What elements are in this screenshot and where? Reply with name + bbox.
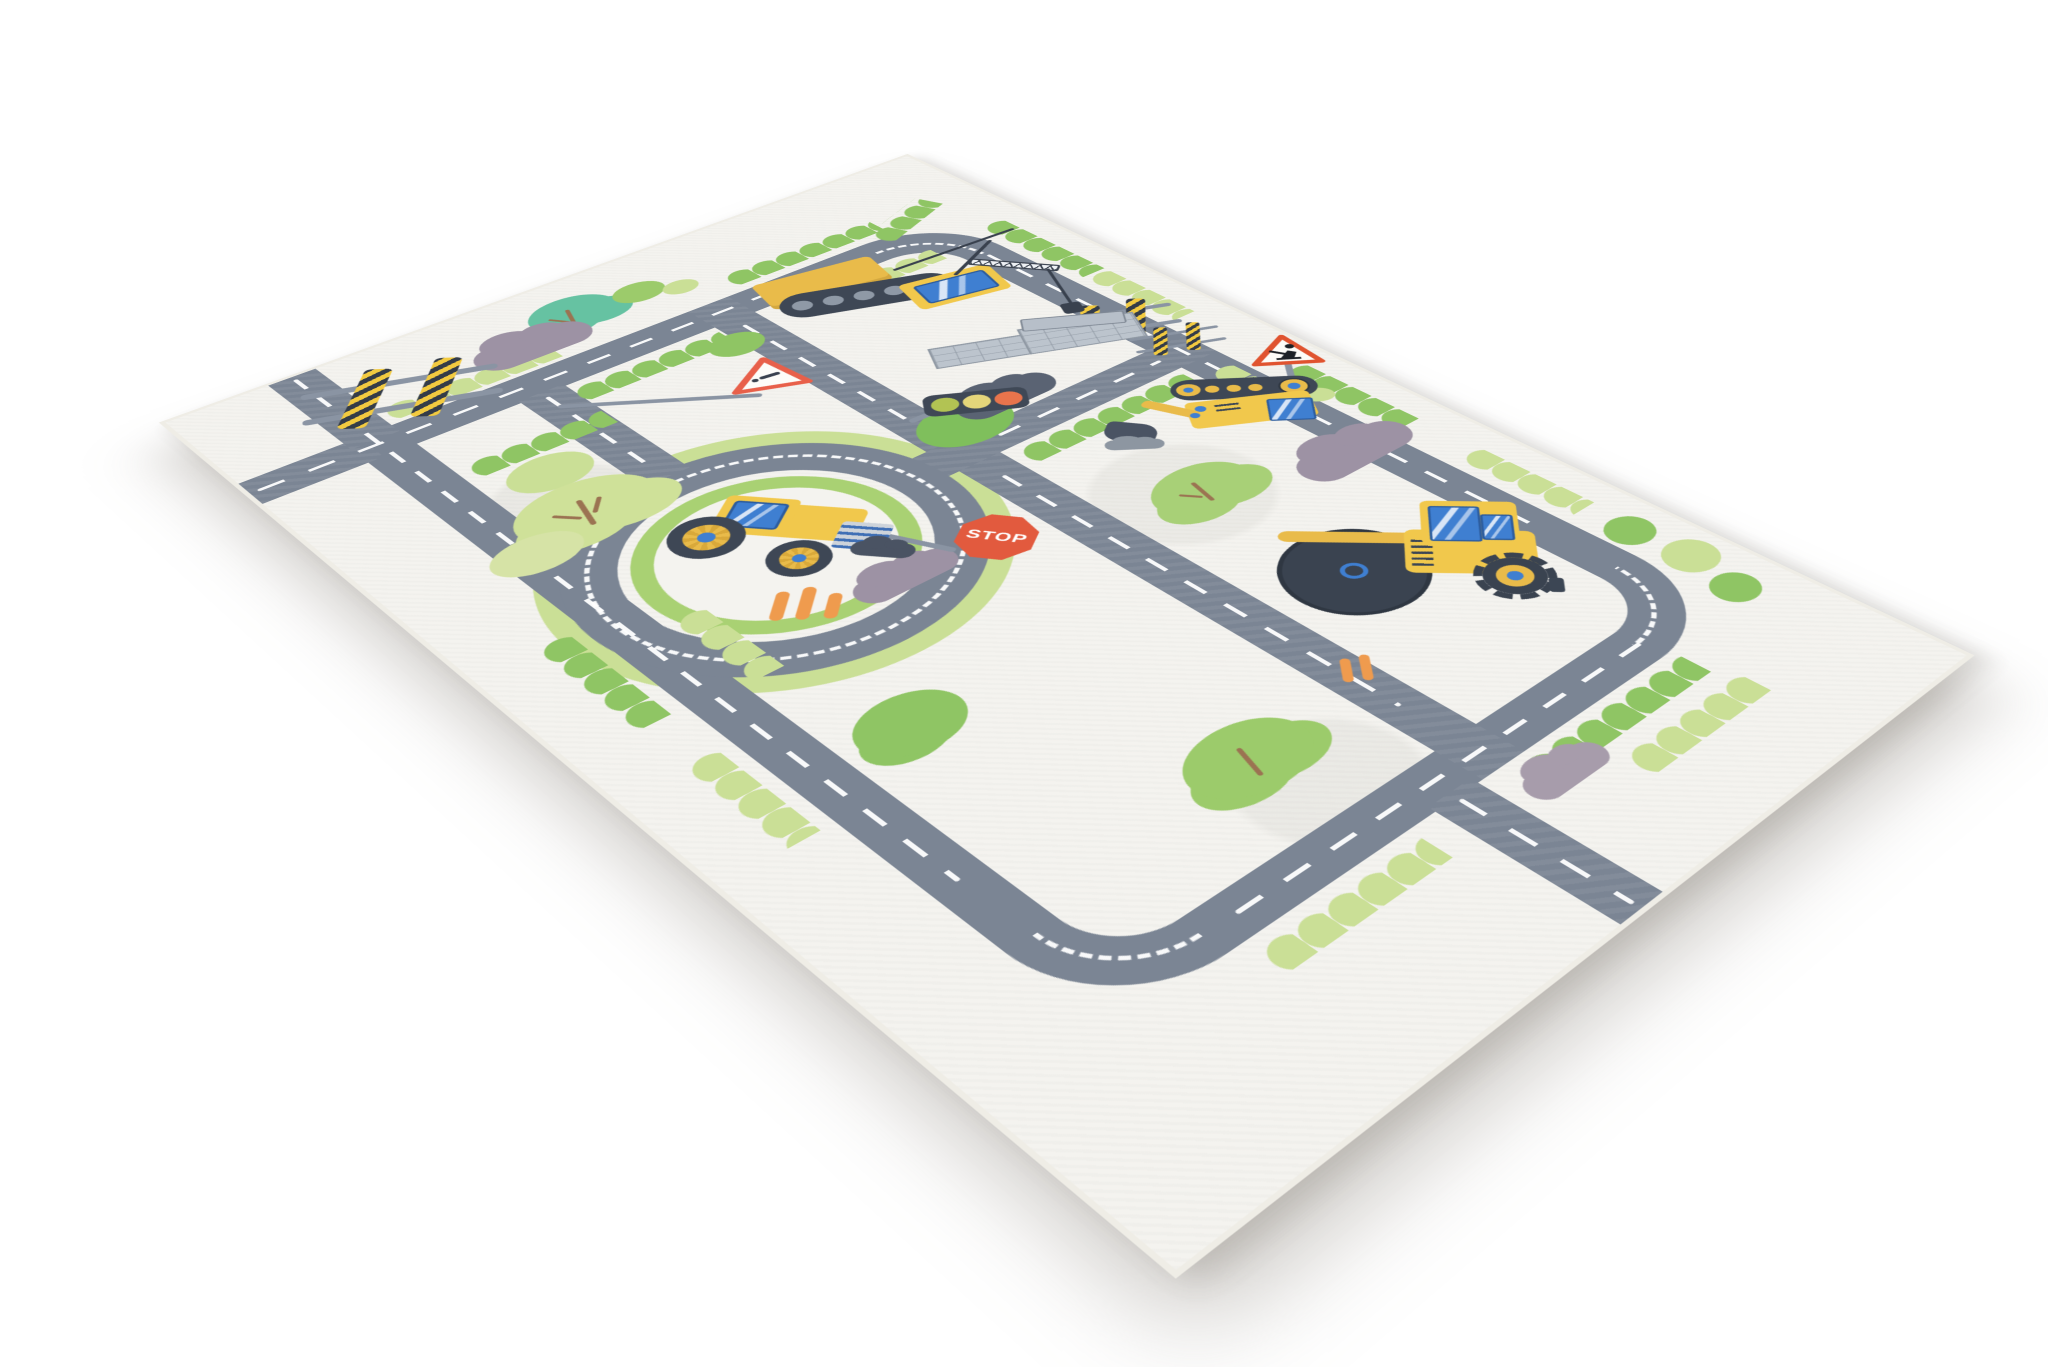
traffic-cones [766,586,864,629]
product-photo-stage: STOP [0,0,2048,1367]
lane-dashes [1458,798,1635,905]
bush [1698,566,1772,608]
tractor-bumper [847,540,918,559]
excavator-window [1266,397,1317,421]
play-rug: STOP [159,154,1975,1279]
crane-cab [897,263,1013,310]
excavator-spill [1104,438,1165,450]
traffic-cones [1338,653,1394,685]
bush [656,276,704,297]
stop-sign-face: STOP [947,512,1046,563]
stop-sign-label: STOP [963,527,1030,546]
roller-exhaust [1548,578,1565,592]
roller-cab [1419,501,1521,546]
tractor-front-wheel [763,536,836,581]
roadworks-triangle-icon [1243,331,1328,368]
excavator [1101,373,1341,467]
